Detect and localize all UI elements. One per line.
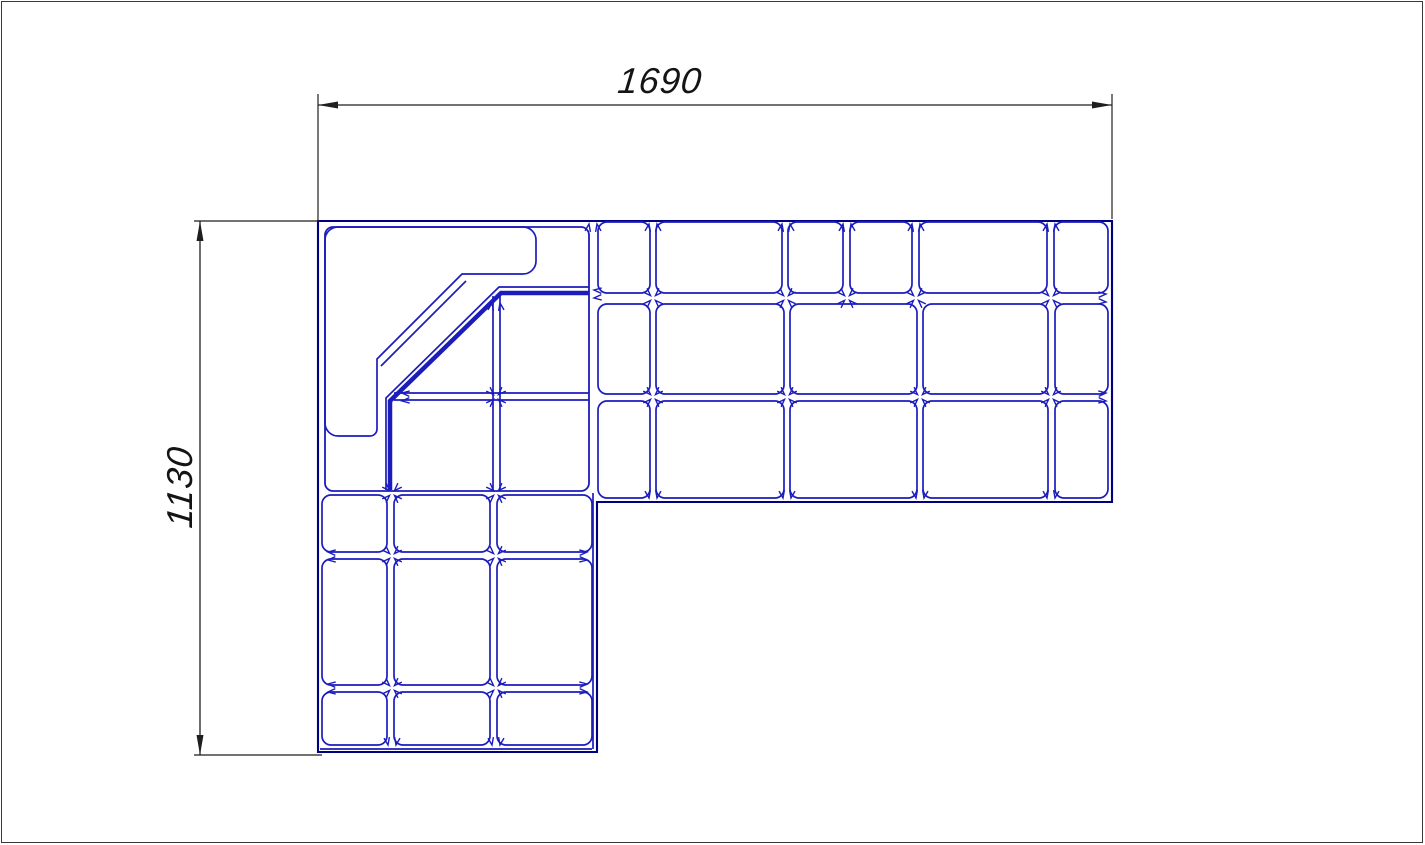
cushion [322, 692, 387, 745]
cushion [923, 401, 1048, 498]
corner-seam-band [390, 293, 589, 490]
seam-line [381, 281, 466, 366]
seam-arrow [499, 496, 506, 503]
cushion [598, 222, 650, 293]
cushion [1055, 304, 1108, 394]
cushion [394, 495, 490, 552]
cushion [923, 304, 1048, 394]
seam-arrow [499, 303, 504, 311]
dimension-arrow [197, 221, 204, 241]
cushion [394, 559, 490, 685]
seam-arrow [789, 301, 796, 308]
cushion [1055, 401, 1108, 498]
cushion [497, 559, 592, 685]
seam-arrow [382, 546, 389, 553]
seam-arrow [656, 301, 663, 308]
seam-arrow [656, 224, 661, 232]
cushion [656, 304, 784, 394]
dimension-label-height: 1130 [159, 412, 201, 562]
seam-arrow [486, 546, 493, 553]
cushion [919, 222, 1047, 293]
cushion [656, 222, 782, 293]
sofa-plan-svg [0, 0, 1425, 845]
seam-arrow [486, 691, 493, 698]
seam-arrow [919, 224, 924, 232]
cushion [322, 495, 387, 552]
cushion [850, 222, 912, 293]
cushion [497, 495, 592, 552]
cushion [394, 692, 490, 745]
cushion [790, 401, 917, 498]
seam-arrow [1041, 301, 1048, 308]
dimension-arrow [318, 102, 338, 109]
cushion [497, 692, 592, 745]
seam-arrow [1041, 288, 1048, 295]
cushion [1054, 222, 1108, 293]
seam-arrow [594, 295, 602, 301]
cushion [322, 559, 387, 685]
cushion [790, 304, 917, 394]
cushion [598, 304, 650, 394]
seam-arrow [1054, 301, 1061, 308]
seam-arrow [837, 288, 844, 295]
seam-arrow [645, 224, 650, 232]
cushion [598, 401, 650, 498]
corner-backrest-cushion [325, 227, 536, 436]
seam-arrow [382, 691, 389, 698]
seam-arrow [1098, 299, 1106, 305]
seam-arrow [1098, 292, 1106, 298]
seam-arrow [486, 678, 493, 685]
seam-arrow [789, 224, 794, 232]
cushion [656, 401, 784, 498]
corner-module-box [325, 227, 589, 491]
seam-arrow [776, 288, 783, 295]
seam-arrow [643, 301, 650, 308]
seam-arrow [486, 559, 493, 566]
seam-arrow [906, 288, 913, 295]
seam-arrow [850, 224, 855, 232]
seam-arrow [395, 483, 402, 490]
cushion [788, 222, 843, 293]
corner-seam-band [386, 287, 589, 490]
dimension-label-width: 1690 [585, 60, 735, 102]
seam-arrow [1054, 224, 1059, 232]
dimension-arrow [1092, 102, 1112, 109]
sofa-outline [318, 221, 1112, 752]
dimension-arrow [197, 735, 204, 755]
seam-arrow [395, 496, 402, 503]
